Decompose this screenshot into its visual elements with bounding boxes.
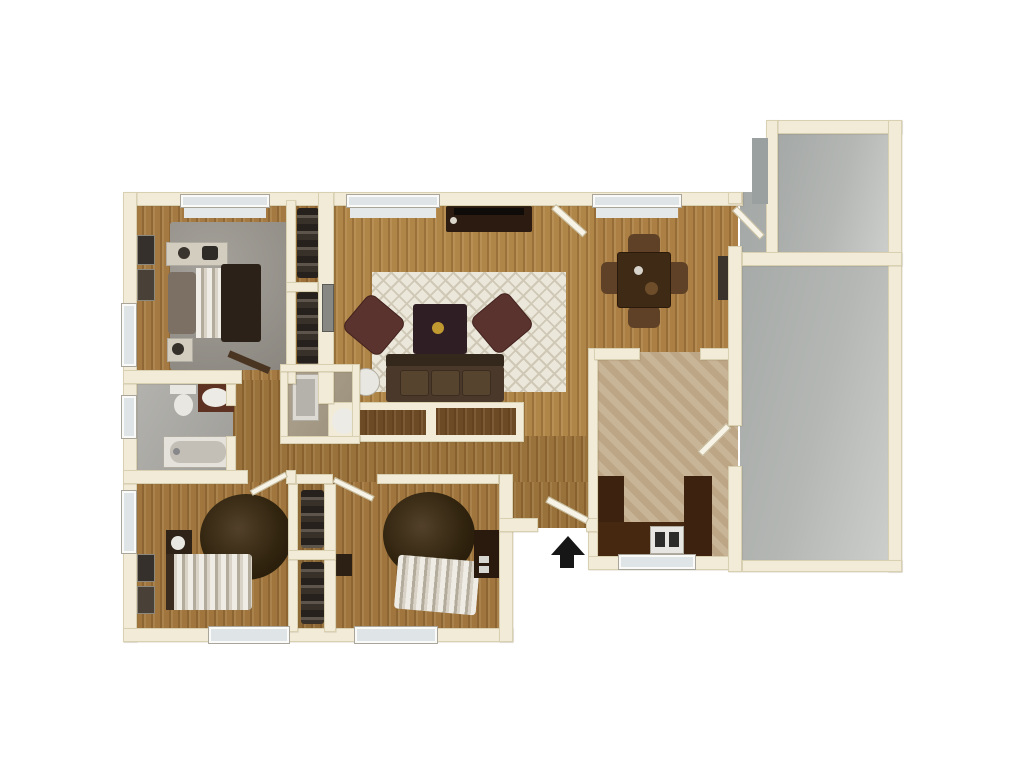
wall-art bbox=[137, 554, 155, 582]
wall bbox=[377, 474, 499, 484]
nightstand-lamp bbox=[172, 343, 184, 355]
shower-basin bbox=[296, 379, 315, 416]
wall bbox=[728, 246, 742, 426]
half-wall-opening bbox=[436, 408, 516, 435]
dresser-decor bbox=[479, 556, 489, 563]
wall-shadow-face bbox=[752, 138, 768, 204]
wall bbox=[288, 550, 336, 560]
window bbox=[121, 490, 137, 554]
wall bbox=[123, 470, 248, 484]
floor-plan-image bbox=[0, 0, 1024, 768]
closet-clothes bbox=[301, 562, 324, 624]
sofa-cushion bbox=[400, 370, 429, 396]
closet-clothes bbox=[297, 292, 319, 364]
bath-sink bbox=[202, 388, 229, 407]
wall bbox=[226, 384, 236, 406]
wall bbox=[280, 364, 288, 444]
wall-art bbox=[718, 256, 728, 300]
window bbox=[354, 626, 438, 644]
wall bbox=[766, 120, 902, 134]
wall bbox=[280, 436, 360, 444]
coffee-table-decor bbox=[432, 322, 444, 334]
dresser-decor bbox=[178, 247, 190, 259]
toilet-bowl bbox=[174, 394, 193, 416]
wall bbox=[352, 364, 360, 444]
wall bbox=[499, 474, 513, 642]
bed-headboard bbox=[168, 272, 196, 334]
wall bbox=[499, 518, 538, 532]
closet-clothes bbox=[301, 490, 324, 548]
storage-room-floor bbox=[776, 132, 890, 256]
console-decor bbox=[450, 217, 457, 224]
wall bbox=[280, 364, 360, 372]
bed-edge bbox=[166, 554, 174, 610]
nightstand bbox=[336, 554, 352, 576]
window bbox=[618, 554, 696, 570]
window bbox=[346, 194, 440, 208]
wall bbox=[123, 370, 242, 384]
dresser-decor bbox=[202, 246, 218, 260]
sofa-cushion bbox=[431, 370, 460, 396]
wall bbox=[123, 628, 513, 642]
wall bbox=[742, 252, 902, 266]
window bbox=[592, 194, 682, 208]
dresser bbox=[166, 242, 228, 266]
window bbox=[121, 395, 137, 439]
toilet-tank bbox=[170, 385, 196, 394]
wall-art bbox=[322, 284, 334, 332]
window bbox=[121, 303, 137, 367]
window-sill bbox=[596, 208, 678, 218]
wall bbox=[286, 200, 296, 384]
wall bbox=[728, 192, 742, 204]
wall bbox=[286, 282, 318, 292]
dining-table bbox=[617, 252, 671, 308]
wall bbox=[588, 348, 598, 568]
window-sill bbox=[184, 208, 266, 218]
window bbox=[180, 194, 270, 208]
wall bbox=[742, 560, 902, 572]
stove-burner bbox=[669, 532, 679, 547]
tv bbox=[454, 208, 524, 215]
nightstand-lamp bbox=[171, 536, 185, 550]
wall-art bbox=[137, 586, 155, 614]
wall bbox=[888, 120, 902, 572]
bed bbox=[166, 554, 252, 610]
kitchen-cabinet bbox=[684, 476, 712, 556]
window bbox=[208, 626, 290, 644]
half-wall-opening bbox=[356, 410, 426, 435]
dining-chair bbox=[628, 306, 660, 328]
wall bbox=[728, 466, 742, 572]
tub-faucet bbox=[173, 448, 180, 455]
table-decor bbox=[645, 282, 658, 295]
entry-arrow-stem bbox=[560, 552, 574, 568]
wall bbox=[226, 436, 236, 474]
table-decor bbox=[634, 266, 643, 275]
wall bbox=[296, 474, 333, 484]
window-sill bbox=[350, 208, 436, 218]
wall bbox=[594, 348, 640, 360]
wall-art bbox=[137, 269, 155, 301]
wall-art bbox=[137, 235, 155, 265]
closet-clothes bbox=[297, 208, 319, 278]
stove-burner bbox=[655, 532, 665, 547]
sofa-cushion bbox=[462, 370, 491, 396]
bed-pillows bbox=[196, 268, 222, 338]
bed bbox=[394, 555, 480, 616]
bed-duvet bbox=[221, 264, 261, 342]
dresser-decor bbox=[479, 566, 489, 573]
